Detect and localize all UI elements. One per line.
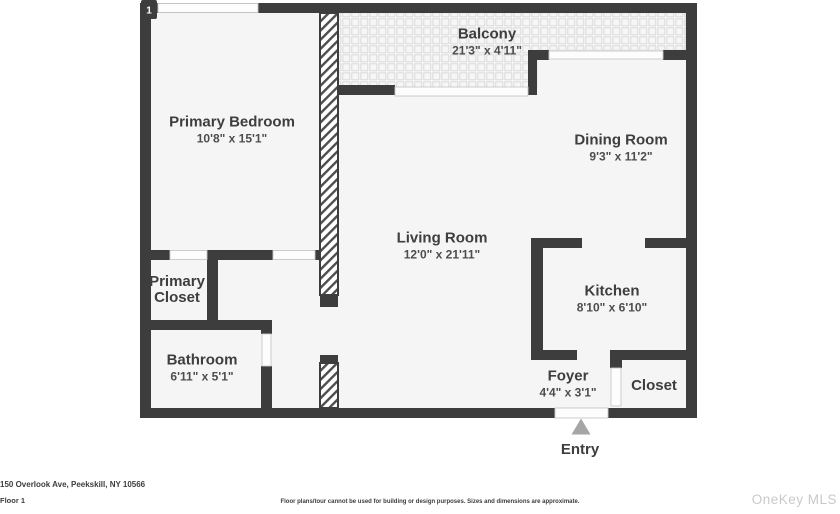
bedroom-door bbox=[273, 251, 315, 260]
wall-foyer-closet-divider bbox=[610, 350, 622, 368]
closet-door bbox=[611, 368, 621, 406]
bathroom-door bbox=[262, 334, 271, 366]
wall-primary-closet-right bbox=[207, 250, 218, 330]
entry-opening bbox=[555, 408, 608, 418]
wall-closet-top bbox=[610, 350, 697, 360]
floor-plan-drawing: 1 bbox=[0, 0, 840, 514]
wall-bathroom-right-upper bbox=[261, 320, 272, 334]
hatched-wall-lower bbox=[320, 363, 338, 408]
bedroom-window bbox=[158, 4, 258, 13]
wall-kitchen-left bbox=[531, 238, 543, 360]
floor-marker-number: 1 bbox=[146, 6, 152, 17]
dining-window bbox=[549, 51, 663, 59]
disclaimer-text: Floor plans/tour cannot be used for buil… bbox=[280, 499, 579, 505]
hatched-wall-upper bbox=[320, 13, 338, 295]
wall-kitchen-top-right bbox=[645, 238, 686, 248]
entry-label: Entry bbox=[561, 441, 599, 458]
wall-kitchen-bottom bbox=[531, 350, 577, 360]
wall-bathroom-top bbox=[151, 320, 272, 330]
wall-outer-left bbox=[140, 3, 151, 418]
floor-marker: 1 bbox=[141, 0, 157, 19]
floor-number: Floor 1 bbox=[0, 496, 25, 505]
entry-arrow-icon bbox=[572, 419, 591, 435]
wall-bedroom-bottom-1 bbox=[151, 250, 170, 260]
wall-dining-top-right bbox=[663, 50, 686, 60]
wall-dining-top-left bbox=[528, 50, 549, 60]
primary-closet-door bbox=[170, 251, 207, 260]
floor-plan-page: 1 Primary Bedroom 10'8" x 15'1" Balcony … bbox=[0, 0, 840, 514]
wall-bathroom-right-lower bbox=[261, 366, 272, 408]
balcony-sliding-door bbox=[395, 87, 528, 96]
wall-balcony-bottom bbox=[338, 85, 395, 95]
property-address: 150 Overlook Ave, Peekskill, NY 10566 bbox=[0, 480, 145, 489]
wall-outer-bottom bbox=[140, 408, 697, 418]
watermark-onekey-mls: OneKey MLS bbox=[752, 492, 837, 507]
